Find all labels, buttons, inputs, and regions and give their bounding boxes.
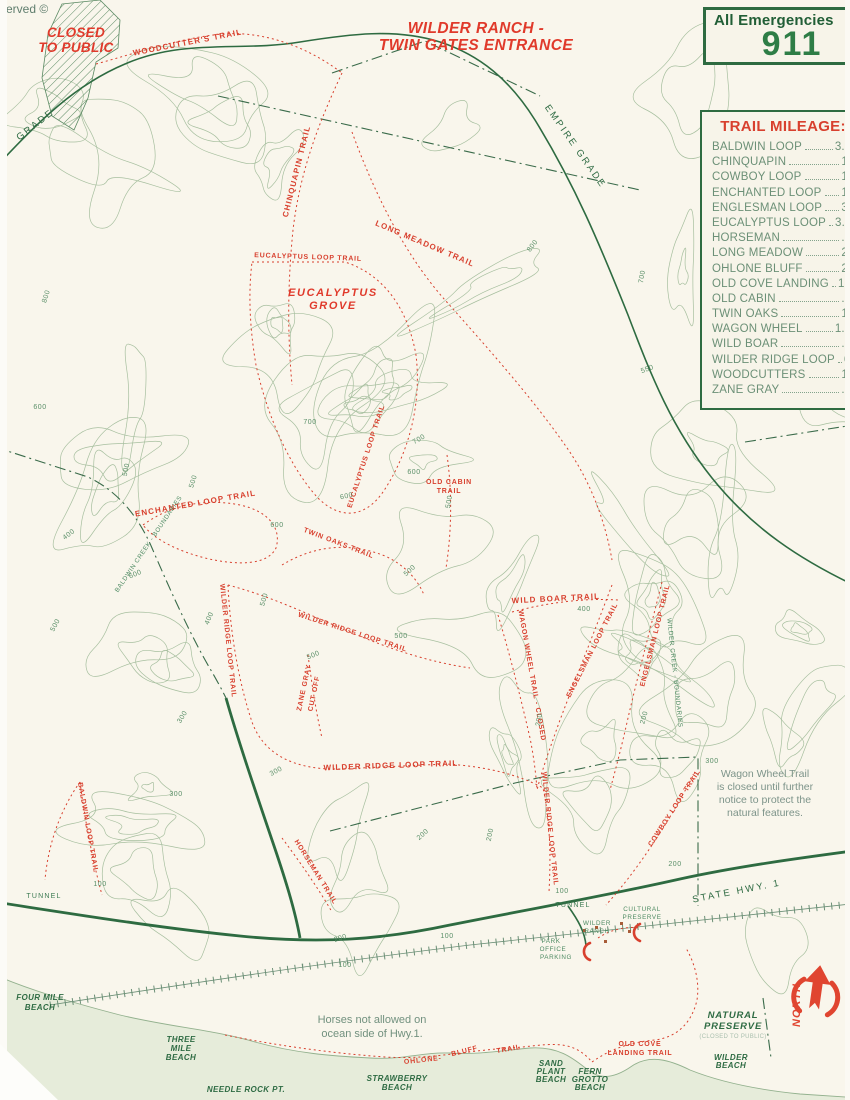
mileage-leader-dots bbox=[838, 362, 842, 363]
elevation-label: 600 bbox=[33, 404, 46, 411]
contour-line bbox=[591, 472, 668, 576]
contour-line bbox=[387, 508, 494, 594]
mileage-row: ENGLESMAN LOOP3.0 bbox=[712, 202, 850, 217]
mileage-row: ENCHANTED LOOP1.5 bbox=[712, 187, 850, 202]
elevation-label: 400 bbox=[577, 606, 590, 613]
label-three-mile-beach: BEACH bbox=[166, 1053, 196, 1062]
twin-oaks-trail-path bbox=[282, 547, 424, 595]
contour-line bbox=[708, 444, 738, 597]
elevation-label: 100 bbox=[338, 962, 351, 969]
notice-line: notice to protect the bbox=[700, 794, 830, 807]
wilder-ridge-loop-trail-path bbox=[228, 585, 550, 892]
trail-map-page: WOODCUTTER'S TRAILCHINQUAPIN TRAILLONG M… bbox=[0, 0, 850, 1100]
contour-line bbox=[49, 126, 180, 192]
elevation-label: 300 bbox=[269, 765, 284, 777]
label-engelsman-loop-trail: ENGELSMAN LOOP TRAIL bbox=[639, 584, 671, 688]
label-strawberry-beach: BEACH bbox=[382, 1083, 412, 1092]
elevation-label: 300 bbox=[169, 791, 182, 798]
elevation-label: 700 bbox=[303, 419, 316, 426]
closed-to-public-label: CLOSED TO PUBLIC bbox=[26, 25, 126, 55]
elevation-label: 500 bbox=[188, 474, 199, 489]
contour-line bbox=[409, 455, 437, 470]
label-three-mile-beach: THREE bbox=[166, 1035, 195, 1044]
closed-to-public-line1: CLOSED bbox=[26, 25, 126, 40]
mileage-row: WAGON WHEEL1.75 bbox=[712, 323, 850, 338]
elevation-label: 500 bbox=[445, 495, 454, 509]
mileage-leader-dots bbox=[806, 255, 839, 256]
mileage-leader-dots bbox=[783, 240, 839, 241]
label-park-office-parking: PARK bbox=[541, 938, 560, 945]
wagon-wheel-closure-notice: Wagon Wheel Trail is closed until furthe… bbox=[700, 768, 830, 820]
contour-line bbox=[81, 99, 155, 228]
label-old-cabin-trail: TRAIL bbox=[437, 488, 462, 495]
label-cultural-preserve: PRESERVE bbox=[623, 914, 662, 921]
mileage-leader-dots bbox=[832, 286, 836, 287]
mileage-trail-name: BALDWIN LOOP bbox=[712, 141, 802, 153]
emergency-box: All Emergencies 911 bbox=[703, 7, 850, 65]
mileage-trail-name: WILD BOAR bbox=[712, 338, 778, 350]
contour-line bbox=[89, 809, 176, 841]
label-eucalyptus-grove: GROVE bbox=[309, 300, 357, 312]
elevation-label: 200 bbox=[333, 933, 348, 944]
contour-line bbox=[91, 465, 118, 516]
mileage-trail-name: EUCALYPTUS LOOP bbox=[712, 217, 826, 229]
contour-line bbox=[86, 612, 187, 676]
elevation-label: 500 bbox=[122, 463, 132, 477]
mileage-leader-dots bbox=[805, 179, 840, 180]
mileage-trail-name: TWIN OAKS bbox=[712, 308, 778, 320]
label-old-cove-landing-trail: OLD COVE bbox=[619, 1041, 662, 1048]
contour-line bbox=[122, 344, 146, 472]
contour-line bbox=[663, 489, 718, 554]
contour-line bbox=[142, 782, 154, 792]
map-title-line2: TWIN GATES ENTRANCE bbox=[330, 37, 622, 54]
elevation-label: 800 bbox=[41, 289, 52, 304]
contour-line bbox=[775, 610, 824, 645]
label-cultural-preserve: CULTURAL bbox=[623, 906, 661, 913]
label-enchanted-loop-trail: ENCHANTED LOOP TRAIL bbox=[134, 488, 256, 518]
contour-line bbox=[106, 815, 159, 834]
label-wild-boar-trail: WILD BOAR TRAIL bbox=[511, 592, 600, 606]
label-baldwin-loop-trail: BALDWIN LOOP TRAIL bbox=[76, 782, 99, 873]
contour-line bbox=[176, 81, 266, 164]
mileage-row: LONG MEADOW2.1 bbox=[712, 247, 850, 262]
label-tunnel: TUNNEL bbox=[555, 902, 590, 909]
mileage-leader-dots bbox=[809, 377, 840, 378]
label-wilder-creek-boundary: WILDER CREEK - BOUNDARIES bbox=[665, 618, 683, 728]
contour-line bbox=[502, 744, 514, 764]
emergency-number: 911 bbox=[714, 27, 850, 61]
mileage-leader-dots bbox=[829, 225, 833, 226]
contour-line bbox=[639, 635, 755, 746]
label-natural-preserve: NATURAL bbox=[708, 1010, 759, 1021]
trail-mileage-title: TRAIL MILEAGE: bbox=[708, 118, 850, 135]
contour-line bbox=[499, 677, 548, 828]
mileage-leader-dots bbox=[789, 164, 839, 165]
mileage-row: WOODCUTTERS1.9 bbox=[712, 369, 850, 384]
label-wilder-ranch: RANCH bbox=[584, 928, 609, 935]
contour-line bbox=[148, 57, 237, 126]
label-twin-oaks-trail: TWIN OAKS TRAIL bbox=[302, 527, 374, 560]
contour-line bbox=[102, 833, 170, 916]
map-title-line1: WILDER RANCH - bbox=[330, 20, 622, 37]
mileage-row: OHLONE BLUFF2.5 bbox=[712, 263, 850, 278]
mileage-trail-name: COWBOY LOOP bbox=[712, 171, 802, 183]
mileage-trail-name: ZANE GRAY bbox=[712, 384, 779, 396]
contour-line bbox=[128, 772, 172, 800]
label-woodcutters-trail: WOODCUTTER'S TRAIL bbox=[132, 28, 243, 58]
mileage-trail-name: ENCHANTED LOOP bbox=[712, 187, 822, 199]
contour-line bbox=[667, 209, 693, 326]
trail-mileage-panel: TRAIL MILEAGE: BALDWIN LOOP3.25CHINQUAPI… bbox=[700, 110, 850, 410]
contour-line bbox=[271, 317, 283, 333]
elevation-label: 400 bbox=[62, 528, 77, 542]
elevation-label: 100 bbox=[555, 888, 568, 895]
mileage-leader-dots bbox=[825, 210, 839, 211]
elevation-label: 500 bbox=[403, 564, 417, 578]
engelsman-loop-trail-path bbox=[610, 582, 662, 790]
map-title: WILDER RANCH - TWIN GATES ENTRANCE bbox=[330, 20, 622, 54]
long-meadow-trail-path bbox=[352, 132, 612, 560]
mileage-leader-dots bbox=[781, 346, 839, 347]
paper-edge-left bbox=[0, 0, 7, 1100]
label-needle-rock-pt: NEEDLE ROCK PT. bbox=[207, 1085, 285, 1094]
elevation-label: 100 bbox=[93, 881, 106, 888]
mileage-row: EUCALYPTUS LOOP3.75 bbox=[712, 217, 850, 232]
elevation-label: 550 bbox=[640, 364, 655, 375]
mileage-row: HORSEMAN.65 bbox=[712, 232, 850, 247]
label-wilder-beach: BEACH bbox=[716, 1061, 746, 1070]
mileage-row: WILD BOAR.25 bbox=[712, 338, 850, 353]
label-wilder-ranch: WILDER bbox=[583, 920, 611, 927]
mileage-leader-dots bbox=[805, 149, 833, 150]
mileage-row: BALDWIN LOOP3.25 bbox=[712, 141, 850, 156]
label-eucalyptus-loop-trail: EUCALYPTUS LOOP TRAIL bbox=[254, 252, 362, 263]
elevation-label: 500 bbox=[49, 618, 61, 633]
notice-line: is closed until further bbox=[700, 781, 830, 794]
elevation-label: 700 bbox=[412, 433, 427, 446]
mileage-leader-dots bbox=[782, 392, 839, 393]
label-eucalyptus-grove: EUCALYPTUS bbox=[288, 287, 378, 299]
contour-line bbox=[314, 304, 435, 437]
label-four-mile-beach: FOUR MILE bbox=[16, 993, 64, 1002]
label-wilder-ridge-loop-trail: WILDER RIDGE LOOP TRAIL bbox=[323, 759, 458, 773]
label-fern-grotto-beach: BEACH bbox=[575, 1083, 605, 1092]
elevation-label: 800 bbox=[526, 239, 540, 254]
label-park-office-parking: OFFICE bbox=[540, 946, 567, 953]
contour-line bbox=[486, 535, 539, 631]
label-four-mile-beach: BEACH bbox=[25, 1003, 55, 1012]
elevation-label: 100 bbox=[440, 933, 453, 940]
contour-line bbox=[382, 385, 412, 400]
contour-line bbox=[581, 719, 616, 761]
mileage-trail-name: OLD CABIN bbox=[712, 293, 776, 305]
label-cowboy-loop-trail: COWBOY LOOP TRAIL bbox=[647, 769, 702, 848]
contour-line bbox=[308, 783, 369, 881]
contour-line bbox=[791, 623, 808, 635]
ranch-road bbox=[226, 698, 300, 938]
label-horseman-trail: HORSEMAN TRAIL bbox=[293, 839, 338, 906]
contour-line bbox=[267, 308, 291, 338]
mileage-leader-dots bbox=[825, 195, 840, 196]
elevation-label: 200 bbox=[416, 828, 430, 842]
note-line: Horses not allowed on bbox=[296, 1014, 448, 1028]
contour-line bbox=[353, 369, 448, 412]
label-wilder-ridge-loop-trail: WILDER RIDGE LOOP TRAIL bbox=[540, 772, 559, 886]
mileage-leader-dots bbox=[781, 316, 839, 317]
notice-line: Wagon Wheel Trail bbox=[700, 768, 830, 781]
horseman-trail-path bbox=[282, 838, 332, 912]
mileage-trail-name: ENGLESMAN LOOP bbox=[712, 202, 822, 214]
contour-line bbox=[630, 714, 709, 802]
mileage-trail-name: HORSEMAN bbox=[712, 232, 780, 244]
elevation-label: 700 bbox=[638, 270, 647, 284]
mileage-row: CHINQUAPIN1.2 bbox=[712, 156, 850, 171]
label-tunnel: TUNNEL bbox=[26, 893, 61, 900]
mileage-trail-name: LONG MEADOW bbox=[712, 247, 803, 259]
contour-line bbox=[223, 313, 333, 413]
mileage-leader-dots bbox=[806, 331, 833, 332]
contour-line bbox=[687, 433, 728, 466]
mileage-leader-dots bbox=[779, 301, 840, 302]
elevation-label: 200 bbox=[668, 861, 681, 868]
mileage-trail-name: OHLONE BLUFF bbox=[712, 263, 803, 275]
label-park-office-parking: PARKING bbox=[540, 954, 572, 961]
label-three-mile-beach: MILE bbox=[171, 1044, 192, 1053]
elevation-label: 500 bbox=[394, 633, 407, 640]
contour-line bbox=[644, 477, 746, 579]
note-line: ocean side of Hwy.1. bbox=[296, 1028, 448, 1042]
label-state-hwy-1: STATE HWY. 1 bbox=[691, 878, 781, 906]
contour-line bbox=[675, 662, 735, 727]
paper-edge-right bbox=[845, 0, 850, 1100]
closed-to-public-line2: TO PUBLIC bbox=[26, 40, 126, 55]
mileage-row: TWIN OAKS1.0 bbox=[712, 308, 850, 323]
copyright-text: served © bbox=[0, 2, 48, 16]
contour-line bbox=[110, 848, 157, 900]
mileage-trail-name: OLD COVE LANDING bbox=[712, 278, 829, 290]
contour-line bbox=[763, 709, 804, 767]
label-old-cove-landing-trail: LANDING TRAIL bbox=[608, 1050, 673, 1057]
label-wilder-ridge-loop-trail: WILDER RIDGE LOOP TRAIL bbox=[218, 584, 237, 698]
label-empire-grade-road: EMPIRE GRADE bbox=[542, 103, 608, 191]
elevation-label: 500 bbox=[259, 592, 269, 607]
elevation-label: 300 bbox=[176, 710, 189, 725]
contour-line bbox=[678, 248, 688, 285]
contour-line bbox=[389, 440, 473, 483]
mileage-row: WILDER RIDGE LOOP6.23 bbox=[712, 354, 850, 369]
elevation-label: 300 bbox=[705, 758, 718, 765]
mileage-row: ZANE GRAY.75 bbox=[712, 384, 850, 399]
railroad-track bbox=[50, 903, 850, 1005]
mileage-leader-dots bbox=[806, 271, 840, 272]
elevation-label: 200 bbox=[486, 828, 496, 842]
label-wilder-ridge-loop-trail: WILDER RIDGE LOOP TRAIL bbox=[297, 612, 408, 654]
horses-restriction-note: Horses not allowed on ocean side of Hwy.… bbox=[296, 1014, 448, 1041]
elevation-label: 600 bbox=[407, 469, 420, 476]
label-natural-preserve: PRESERVE bbox=[704, 1021, 762, 1032]
mileage-trail-name: CHINQUAPIN bbox=[712, 156, 786, 168]
label-sand-plant-beach: BEACH bbox=[536, 1075, 566, 1084]
mileage-trail-name: WILDER RIDGE LOOP bbox=[712, 354, 835, 366]
trail-mileage-list: BALDWIN LOOP3.25CHINQUAPIN1.2COWBOY LOOP… bbox=[712, 141, 850, 399]
contour-line bbox=[151, 650, 194, 681]
label-old-cabin-trail: OLD CABIN bbox=[426, 479, 472, 486]
contour-line bbox=[330, 832, 388, 912]
mileage-trail-name: WOODCUTTERS bbox=[712, 369, 806, 381]
label-long-meadow-trail: LONG MEADOW TRAIL bbox=[374, 219, 476, 269]
mileage-trail-name: WAGON WHEEL bbox=[712, 323, 803, 335]
label-strawberry-beach: STRAWBERRY bbox=[367, 1074, 428, 1083]
elevation-label: 500 bbox=[306, 650, 321, 661]
contour-line bbox=[429, 267, 522, 318]
elevation-label: 200 bbox=[639, 710, 649, 725]
mileage-row: OLD CABIN.75 bbox=[712, 293, 850, 308]
chinquapin-trail-path bbox=[289, 73, 342, 385]
label-natural-preserve-closed: (CLOSED TO PUBLIC) bbox=[699, 1034, 766, 1040]
mileage-row: COWBOY LOOP1.5 bbox=[712, 171, 850, 186]
mileage-row: OLD COVE LANDING1.25 bbox=[712, 278, 850, 293]
old-cabin-trail-path bbox=[446, 455, 451, 568]
elevation-label: 400 bbox=[204, 611, 215, 626]
notice-line: natural features. bbox=[700, 807, 830, 820]
contour-line bbox=[563, 776, 611, 831]
elevation-label: 600 bbox=[270, 522, 283, 529]
